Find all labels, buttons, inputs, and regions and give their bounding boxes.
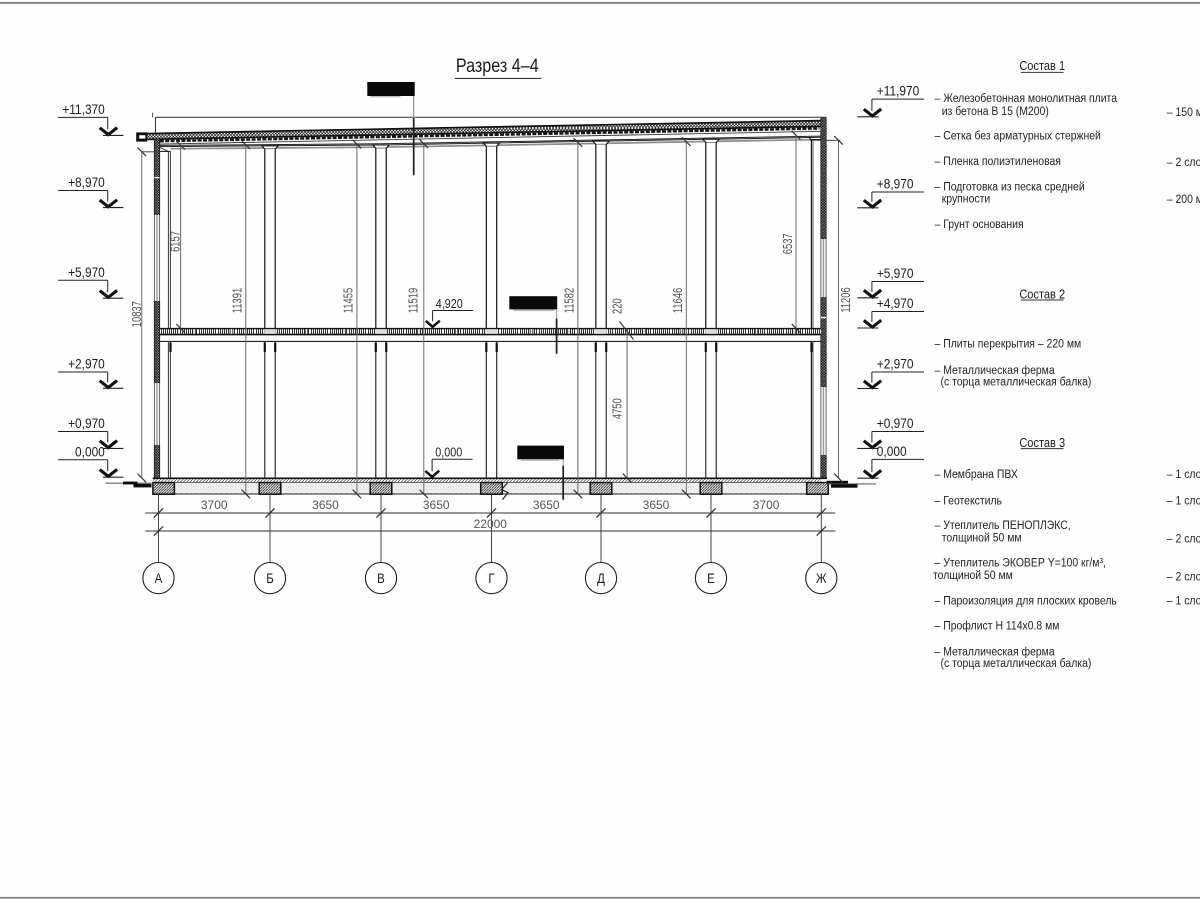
svg-text:22000: 22000 bbox=[474, 517, 508, 531]
svg-text:+4,970: +4,970 bbox=[877, 295, 914, 311]
svg-text:+11,370: +11,370 bbox=[62, 101, 104, 117]
svg-text:+11,970: +11,970 bbox=[877, 83, 919, 99]
svg-text:– 1 слой: – 1 слой bbox=[1167, 495, 1200, 508]
svg-text:11519: 11519 bbox=[407, 288, 421, 313]
svg-text:11646: 11646 bbox=[672, 288, 686, 313]
svg-text:+2,970: +2,970 bbox=[68, 356, 105, 372]
svg-text:толщиной 50 мм: толщиной 50 мм bbox=[942, 532, 1022, 545]
svg-text:– Железобетонная монолитная п: – Железобетонная монолитная плита bbox=[935, 92, 1118, 105]
svg-text:Состав 2: Состав 2 bbox=[1019, 286, 1065, 301]
svg-text:220: 220 bbox=[611, 298, 625, 314]
svg-text:– Пароизоляция для плоских кро: – Пароизоляция для плоских кровель bbox=[935, 595, 1117, 608]
svg-text:10837: 10837 bbox=[131, 301, 145, 327]
svg-text:11455: 11455 bbox=[342, 288, 356, 313]
svg-text:(с торца металлическая балка): (с торца металлическая балка) bbox=[941, 657, 1092, 670]
svg-text:+2,970: +2,970 bbox=[877, 356, 914, 372]
svg-text:3700: 3700 bbox=[201, 498, 228, 512]
svg-text:6157: 6157 bbox=[169, 231, 183, 252]
svg-text:толщиной 50 мм: толщиной 50 мм bbox=[933, 569, 1013, 582]
svg-text:3700: 3700 bbox=[753, 498, 780, 512]
svg-text:3650: 3650 bbox=[312, 498, 339, 512]
svg-text:– Грунт основания: – Грунт основания bbox=[935, 218, 1024, 231]
svg-text:4,920: 4,920 bbox=[436, 296, 463, 311]
svg-text:из бетона В 15 (М200): из бетона В 15 (М200) bbox=[942, 105, 1049, 118]
svg-text:11582: 11582 bbox=[563, 288, 577, 313]
svg-text:+8,970: +8,970 bbox=[877, 176, 914, 192]
svg-text:0,000: 0,000 bbox=[877, 443, 907, 459]
svg-text:крупности: крупности bbox=[942, 193, 990, 206]
svg-text:– Сетка без арматурных стержне: – Сетка без арматурных стержней bbox=[935, 130, 1101, 143]
svg-text:– 200 мм: – 200 мм bbox=[1167, 193, 1200, 206]
svg-text:– 2 слоя: – 2 слоя bbox=[1167, 156, 1200, 169]
svg-text:– 1 слой: – 1 слой bbox=[1167, 469, 1200, 482]
svg-text:+8,970: +8,970 bbox=[68, 174, 105, 190]
svg-text:+0,970: +0,970 bbox=[877, 415, 914, 431]
svg-text:+0,970: +0,970 bbox=[68, 415, 105, 431]
svg-text:Ж: Ж bbox=[816, 571, 827, 586]
svg-text:– Утеплитель ПЕНОПЛЭКС,: – Утеплитель ПЕНОПЛЭКС, bbox=[935, 519, 1071, 532]
svg-text:– 2 слоя: – 2 слоя bbox=[1167, 571, 1200, 584]
svg-text:Состав 3: Состав 3 bbox=[1019, 435, 1065, 450]
svg-text:0,000: 0,000 bbox=[75, 443, 105, 459]
svg-text:Г: Г bbox=[488, 571, 494, 586]
svg-text:А: А bbox=[155, 571, 163, 586]
svg-text:– 2 слоя: – 2 слоя bbox=[1167, 533, 1200, 546]
svg-text:6537: 6537 bbox=[782, 233, 796, 254]
svg-text:(с торца металлическая балка): (с торца металлическая балка) bbox=[941, 376, 1092, 389]
svg-text:+5,970: +5,970 bbox=[68, 264, 105, 280]
svg-text:– Мембрана ПВХ: – Мембрана ПВХ bbox=[935, 468, 1019, 481]
svg-text:+5,970: +5,970 bbox=[877, 265, 914, 281]
svg-text:Б: Б bbox=[266, 571, 274, 586]
svg-text:– Геотекстиль: – Геотекстиль bbox=[935, 495, 1003, 508]
svg-text:– Плиты перекрытия – 220 мм: – Плиты перекрытия – 220 мм bbox=[935, 338, 1082, 351]
svg-text:– 1 слой: – 1 слой bbox=[1167, 595, 1200, 608]
svg-text:В: В bbox=[377, 571, 385, 586]
svg-text:– Профлист Н 114х0.8 мм: – Профлист Н 114х0.8 мм bbox=[935, 620, 1060, 633]
svg-text:3650: 3650 bbox=[533, 498, 560, 512]
svg-text:3650: 3650 bbox=[643, 498, 670, 512]
svg-text:Д: Д bbox=[597, 571, 605, 586]
svg-text:4750: 4750 bbox=[611, 398, 625, 419]
svg-text:3650: 3650 bbox=[423, 498, 450, 512]
svg-text:Состав 1: Состав 1 bbox=[1019, 58, 1065, 73]
svg-text:11206: 11206 bbox=[840, 287, 854, 312]
svg-text:0,000: 0,000 bbox=[435, 445, 462, 460]
svg-text:– Пленка полиэтиленовая: – Пленка полиэтиленовая bbox=[935, 155, 1061, 168]
svg-text:– 150 мм: – 150 мм bbox=[1167, 106, 1200, 119]
svg-text:11391: 11391 bbox=[231, 288, 245, 313]
svg-text:– Утеплитель ЭКОВЕР Y=100 кг/м: – Утеплитель ЭКОВЕР Y=100 кг/м³, bbox=[935, 557, 1106, 570]
svg-text:Разрез 4–4: Разрез 4–4 bbox=[456, 55, 539, 77]
svg-text:Е: Е bbox=[707, 571, 715, 586]
